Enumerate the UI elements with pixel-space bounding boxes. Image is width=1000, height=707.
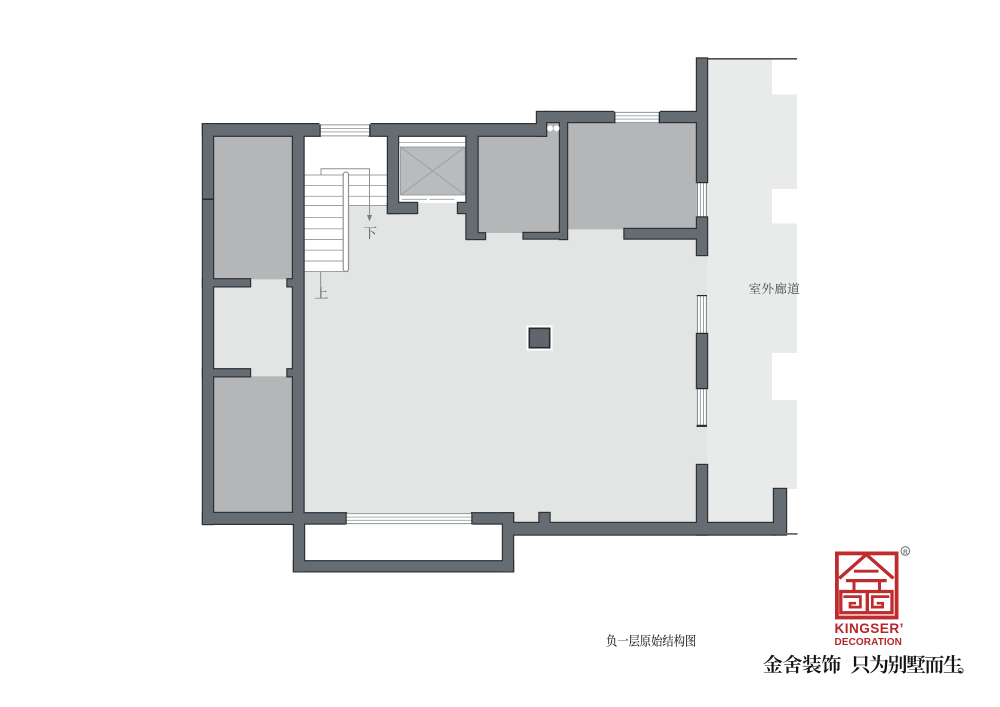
svg-text:KINGSER’: KINGSER’ [835, 621, 904, 636]
svg-text:R: R [903, 549, 908, 556]
svg-text:DECORATION: DECORATION [835, 637, 902, 648]
